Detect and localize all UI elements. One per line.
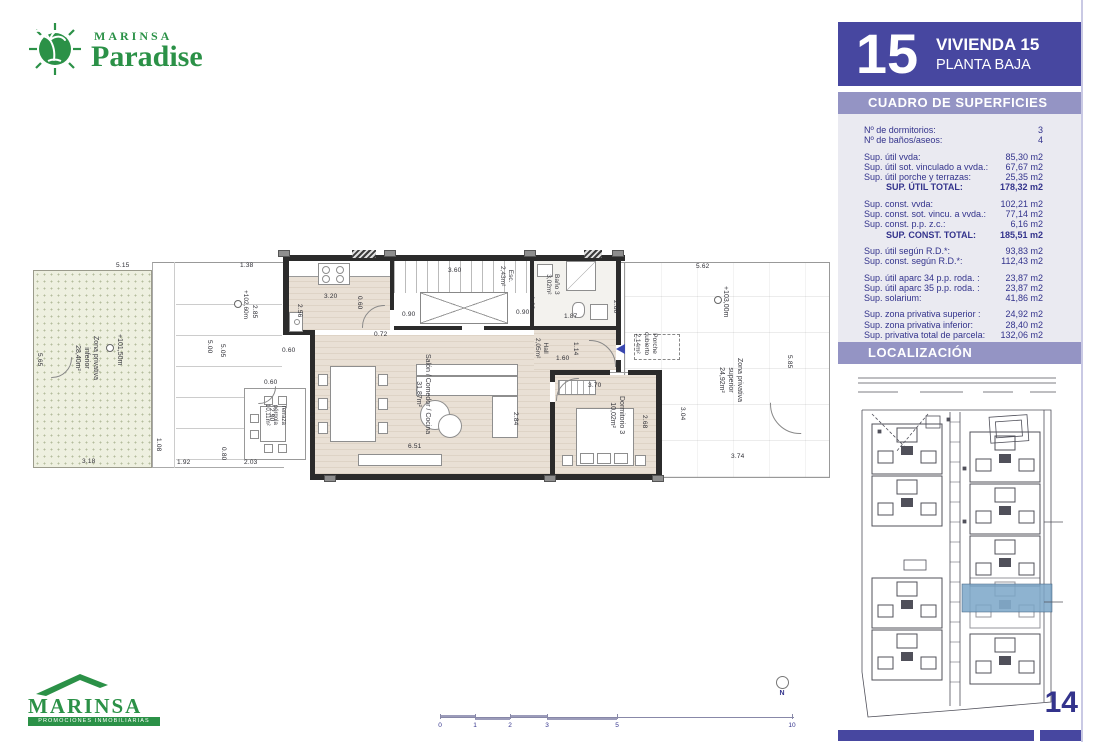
wall-segment: [310, 474, 662, 480]
surface-value: 4: [1038, 135, 1043, 145]
surface-value: 185,51 m2: [1000, 230, 1043, 240]
surfaces-panel: Nº de dormitorios:3Nº de baños/aseos:4Su…: [838, 114, 1083, 342]
chair: [318, 374, 328, 386]
surface-row: Sup. zona privativa superior :24,92 m2: [838, 309, 1083, 319]
pillar: [524, 250, 536, 257]
wall-segment: [550, 370, 610, 375]
dimension-label: 3.70: [588, 383, 601, 390]
dimension-label: 2.68: [641, 415, 648, 428]
surface-value: 132,06 m2: [1000, 330, 1043, 340]
unit-number: 15: [838, 24, 936, 84]
dimension-label: 3.60: [448, 268, 461, 275]
chair: [318, 422, 328, 434]
surface-value: 25,35 m2: [1005, 172, 1043, 182]
burner-icon: [322, 275, 330, 283]
sink-basin: [294, 319, 300, 325]
stair-void: [420, 292, 508, 324]
dimension-label: 5.62: [696, 264, 709, 271]
surface-row: Sup. const. vvda:102,21 m2: [838, 199, 1083, 209]
surface-row: Sup. útil vvda:85,30 m2: [838, 152, 1083, 162]
surface-group: Sup. zona privativa superior :24,92 m2Su…: [838, 309, 1083, 340]
surface-row: Sup. const. según R.D.*:112,43 m2: [838, 256, 1083, 266]
pillar: [324, 475, 336, 482]
scale-tick-label: 1: [468, 722, 482, 729]
marinsa-footer-logo: MARINSA PROMOCIONES INMOBILIARIAS: [26, 670, 176, 728]
dimension-label: 3.18: [82, 459, 95, 466]
wall-segment: [628, 370, 662, 375]
dimension-label: 5.65: [36, 353, 43, 366]
footer-bar: [838, 730, 1034, 741]
north-circle-icon: [776, 676, 789, 689]
surface-label: Nº de baños/aseos:: [864, 135, 942, 145]
scale-tick-label: 0: [433, 722, 447, 729]
dimension-label: 1.38: [240, 263, 253, 270]
surface-label: Sup. útil sot. vinculado a vvda.:: [864, 162, 988, 172]
surface-group: Sup. útil aparc 34 p.p. roda. :23,87 m2S…: [838, 273, 1083, 304]
room-label: Hall2,05m²: [532, 338, 549, 358]
north-indicator: N: [770, 676, 794, 697]
scale-tick: [792, 714, 793, 719]
level-marker-icon: [714, 296, 722, 304]
chair: [378, 398, 388, 410]
burner-icon: [336, 266, 344, 274]
window-line: [610, 372, 628, 373]
wall-segment: [310, 330, 315, 480]
surface-value: 24,92 m2: [1005, 309, 1043, 319]
room-label: Zona privativainferior28,40m²: [73, 336, 100, 380]
dimension-label: 6.51: [408, 444, 421, 451]
surface-value: 23,87 m2: [1005, 283, 1043, 293]
surface-value: 77,14 m2: [1005, 209, 1043, 219]
footer-brand-tagline: PROMOCIONES INMOBILIARIAS: [28, 717, 160, 726]
nightstand: [562, 455, 573, 466]
surface-row: Sup. útil aparc 35 p.p. roda. :23,87 m2: [838, 283, 1083, 293]
surface-label: Sup. zona privativa inferior:: [864, 320, 973, 330]
dimension-label: 0.60: [264, 380, 277, 387]
room-label: +103,00m: [721, 286, 730, 317]
dimension-label: 5.15: [116, 263, 129, 270]
stove: [318, 263, 350, 285]
pillow: [580, 453, 594, 464]
burner-icon: [336, 275, 344, 283]
scale-segment: [475, 718, 510, 720]
dimension-label: 1.60: [556, 356, 569, 363]
scale-segment: [547, 718, 617, 720]
wall-segment: [550, 370, 555, 382]
surface-label: Sup. zona privativa superior :: [864, 309, 981, 319]
scale-tick: [510, 714, 511, 719]
outdoor-chair: [250, 414, 259, 423]
room-label: Zona privativasuperior24,92m²: [717, 358, 744, 402]
floor-plan: 5.151.385.655.005.052.850.603.202.560.60…: [28, 248, 831, 490]
surface-row: Sup. privativa total de parcela:132,06 m…: [838, 330, 1083, 340]
pillow: [614, 453, 628, 464]
room-label: Porchecubierto2,14m²: [633, 332, 658, 355]
shower: [566, 261, 596, 291]
dimension-label: 1.08: [155, 438, 162, 451]
wall-segment: [530, 255, 534, 330]
surface-label: SUP. ÚTIL TOTAL:: [864, 182, 963, 192]
dimension-label: 0.60: [356, 296, 363, 309]
wall-segment: [484, 326, 530, 330]
surface-value: 102,21 m2: [1000, 199, 1043, 209]
surface-value: 112,43 m2: [1001, 256, 1043, 266]
surface-label: Sup. const. vvda:: [864, 199, 933, 209]
surface-row: Sup. útil sot. vinculado a vvda.:67,67 m…: [838, 162, 1083, 172]
surface-row: Sup. solarium:41,86 m2: [838, 293, 1083, 303]
surface-row: Sup. útil según R.D.*:93,83 m2: [838, 246, 1083, 256]
pillar: [652, 475, 664, 482]
pillow: [597, 453, 611, 464]
dimension-label: 1.92: [177, 460, 190, 467]
surface-value: 28,40 m2: [1005, 320, 1043, 330]
surface-label: Nº de dormitorios:: [864, 125, 936, 135]
chair: [378, 374, 388, 386]
surface-group: Nº de dormitorios:3Nº de baños/aseos:4: [838, 125, 1083, 146]
dimension-label: 1.62: [528, 296, 535, 309]
surface-row: Nº de dormitorios:3: [838, 125, 1083, 135]
dimension-label: 0.60: [282, 348, 295, 355]
surface-value: 23,87 m2: [1005, 273, 1043, 283]
brand-product-name: Paradise: [91, 40, 203, 74]
dimension-label: 0.90: [516, 310, 529, 317]
room-label: Esc.2,43m²: [497, 266, 514, 286]
surface-value: 93,83 m2: [1005, 246, 1043, 256]
location-section-title: LOCALIZACIÓN: [838, 342, 1083, 364]
surface-value: 41,86 m2: [1005, 293, 1043, 303]
surfaces-section-title: CUADRO DE SUPERFICIES: [838, 92, 1083, 114]
entrance-marker-icon: [616, 344, 625, 354]
scale-bar: 0123510: [440, 713, 800, 733]
selected-unit-highlight: [962, 584, 1052, 612]
surface-row: SUP. CONST. TOTAL:185,51 m2: [838, 230, 1083, 240]
pillar: [278, 250, 290, 257]
surface-label: Sup. útil porche y terrazas:: [864, 172, 971, 182]
dimension-label: 3.20: [324, 294, 337, 301]
chair: [378, 422, 388, 434]
surface-label: Sup. const. según R.D.*:: [864, 256, 963, 266]
surface-group: Sup. útil vvda:85,30 m2Sup. útil sot. vi…: [838, 152, 1083, 193]
room-label: Terrazapérgola10,11m²: [263, 404, 286, 426]
dimension-label: 3.74: [731, 454, 744, 461]
dimension-label: 5.85: [786, 355, 793, 368]
wall-segment: [616, 255, 621, 335]
room-label: Salón / Comedor / Cocina31,87m²: [414, 354, 432, 434]
surfaces-rows: Nº de dormitorios:3Nº de baños/aseos:4Su…: [838, 125, 1083, 340]
outdoor-chair: [278, 444, 287, 453]
wall-segment: [394, 326, 462, 330]
scale-tick-label: 2: [503, 722, 517, 729]
scale-tick: [547, 714, 548, 719]
surface-label: Sup. útil aparc 35 p.p. roda. :: [864, 283, 980, 293]
unit-title: VIVIENDA 15: [936, 35, 1039, 55]
room-label: +101,50m: [115, 334, 124, 365]
surface-row: Sup. útil porche y terrazas:25,35 m2: [838, 172, 1083, 182]
brochure-page: { "colors": { "green": "#2b9147", "accen…: [0, 0, 1115, 742]
outdoor-chair: [250, 430, 259, 439]
footer-brand-name: MARINSA: [28, 694, 142, 719]
dimension-label: 1.14: [572, 342, 579, 355]
washer: [590, 304, 608, 320]
scale-segment: [440, 715, 475, 717]
surface-label: Sup. útil según R.D.*:: [864, 246, 950, 256]
wall-segment: [656, 370, 662, 480]
surface-label: Sup. privativa total de parcela:: [864, 330, 985, 340]
site-plan-map: [848, 372, 1066, 720]
scale-tick-label: 10: [785, 722, 799, 729]
boundary-line: [174, 262, 175, 468]
nightstand: [635, 455, 646, 466]
surface-value: 178,32 m2: [1000, 182, 1043, 192]
dimension-label: 1.87: [564, 314, 577, 321]
surface-group: Sup. útil según R.D.*:93,83 m2Sup. const…: [838, 246, 1083, 267]
surface-row: Sup. útil aparc 34 p.p. roda. :23,87 m2: [838, 273, 1083, 283]
dimension-label: 2.56: [296, 304, 303, 317]
palm-sun-icon: [28, 22, 82, 76]
dimension-label: 5.00: [206, 340, 213, 353]
unit-subtitle: PLANTA BAJA: [936, 57, 1039, 73]
room-label: Baño 33,02m²: [543, 274, 560, 295]
dimension-label: 0.90: [402, 312, 415, 319]
scale-tick: [617, 714, 618, 719]
dining-table: [330, 366, 376, 442]
surface-row: Sup. const. p.p. z.c.:6,16 m2: [838, 219, 1083, 229]
dimension-label: 2.84: [512, 412, 519, 425]
dimension-label: 5.05: [219, 344, 226, 357]
dimension-label: 3.14: [308, 409, 315, 422]
scale-segment: [510, 715, 547, 717]
pillar: [544, 475, 556, 482]
vent-hatch: [584, 250, 602, 258]
surface-value: 6,16 m2: [1010, 219, 1043, 229]
scale-tick: [440, 714, 441, 719]
chair: [318, 398, 328, 410]
scale-tick-label: 3: [540, 722, 554, 729]
surface-label: SUP. CONST. TOTAL:: [864, 230, 976, 240]
footer-bar: [1040, 730, 1083, 741]
surface-group: Sup. const. vvda:102,21 m2Sup. const. so…: [838, 199, 1083, 240]
wall-segment: [616, 335, 621, 345]
level-marker-icon: [234, 300, 242, 308]
dimension-label: 2.03: [244, 460, 257, 467]
dimension-label: 3.04: [679, 407, 686, 420]
coffee-table: [438, 414, 462, 438]
marinsa-paradise-logo: MARINSA Paradise: [28, 22, 258, 82]
surface-value: 67,67 m2: [1005, 162, 1043, 172]
surface-label: Sup. solarium:: [864, 293, 922, 303]
surface-label: Sup. útil vvda:: [864, 152, 921, 162]
surface-label: Sup. const. p.p. z.c.:: [864, 219, 946, 229]
surface-value: 85,30 m2: [1005, 152, 1043, 162]
pillar: [612, 250, 624, 257]
dimension-label: 0.80: [220, 447, 227, 460]
surface-row: Nº de baños/aseos:4: [838, 135, 1083, 145]
surface-row: Sup. const. sot. vincu. a vvda.:77,14 m2: [838, 209, 1083, 219]
unit-header: 15 VIVIENDA 15 PLANTA BAJA: [838, 22, 1083, 86]
wall-segment: [616, 360, 621, 372]
tv-bench: [358, 454, 442, 466]
scale-tick: [475, 714, 476, 719]
wall-segment: [530, 326, 620, 330]
wall-segment: [390, 255, 394, 310]
scale-tick-label: 5: [610, 722, 624, 729]
page-edge-line: [1081, 0, 1083, 742]
outdoor-chair: [264, 444, 273, 453]
page-number: 14: [1008, 686, 1078, 720]
dimension-label: 2.85: [251, 305, 258, 318]
pillar: [384, 250, 396, 257]
wall-segment: [550, 402, 555, 480]
dimension-label: 2.80: [612, 300, 619, 313]
roof-icon: [34, 670, 154, 696]
level-marker-icon: [106, 344, 114, 352]
room-label: Dormitorio 310,02m²: [608, 396, 626, 434]
burner-icon: [322, 266, 330, 274]
surface-row: SUP. ÚTIL TOTAL:178,32 m2: [838, 182, 1083, 192]
surface-label: Sup. útil aparc 34 p.p. roda. :: [864, 273, 980, 283]
surface-value: 3: [1038, 125, 1043, 135]
north-label: N: [770, 690, 794, 697]
dimension-label: 0.72: [374, 332, 387, 339]
vent-hatch: [352, 250, 376, 258]
surface-label: Sup. const. sot. vincu. a vvda.:: [864, 209, 986, 219]
surface-row: Sup. zona privativa inferior:28,40 m2: [838, 320, 1083, 330]
